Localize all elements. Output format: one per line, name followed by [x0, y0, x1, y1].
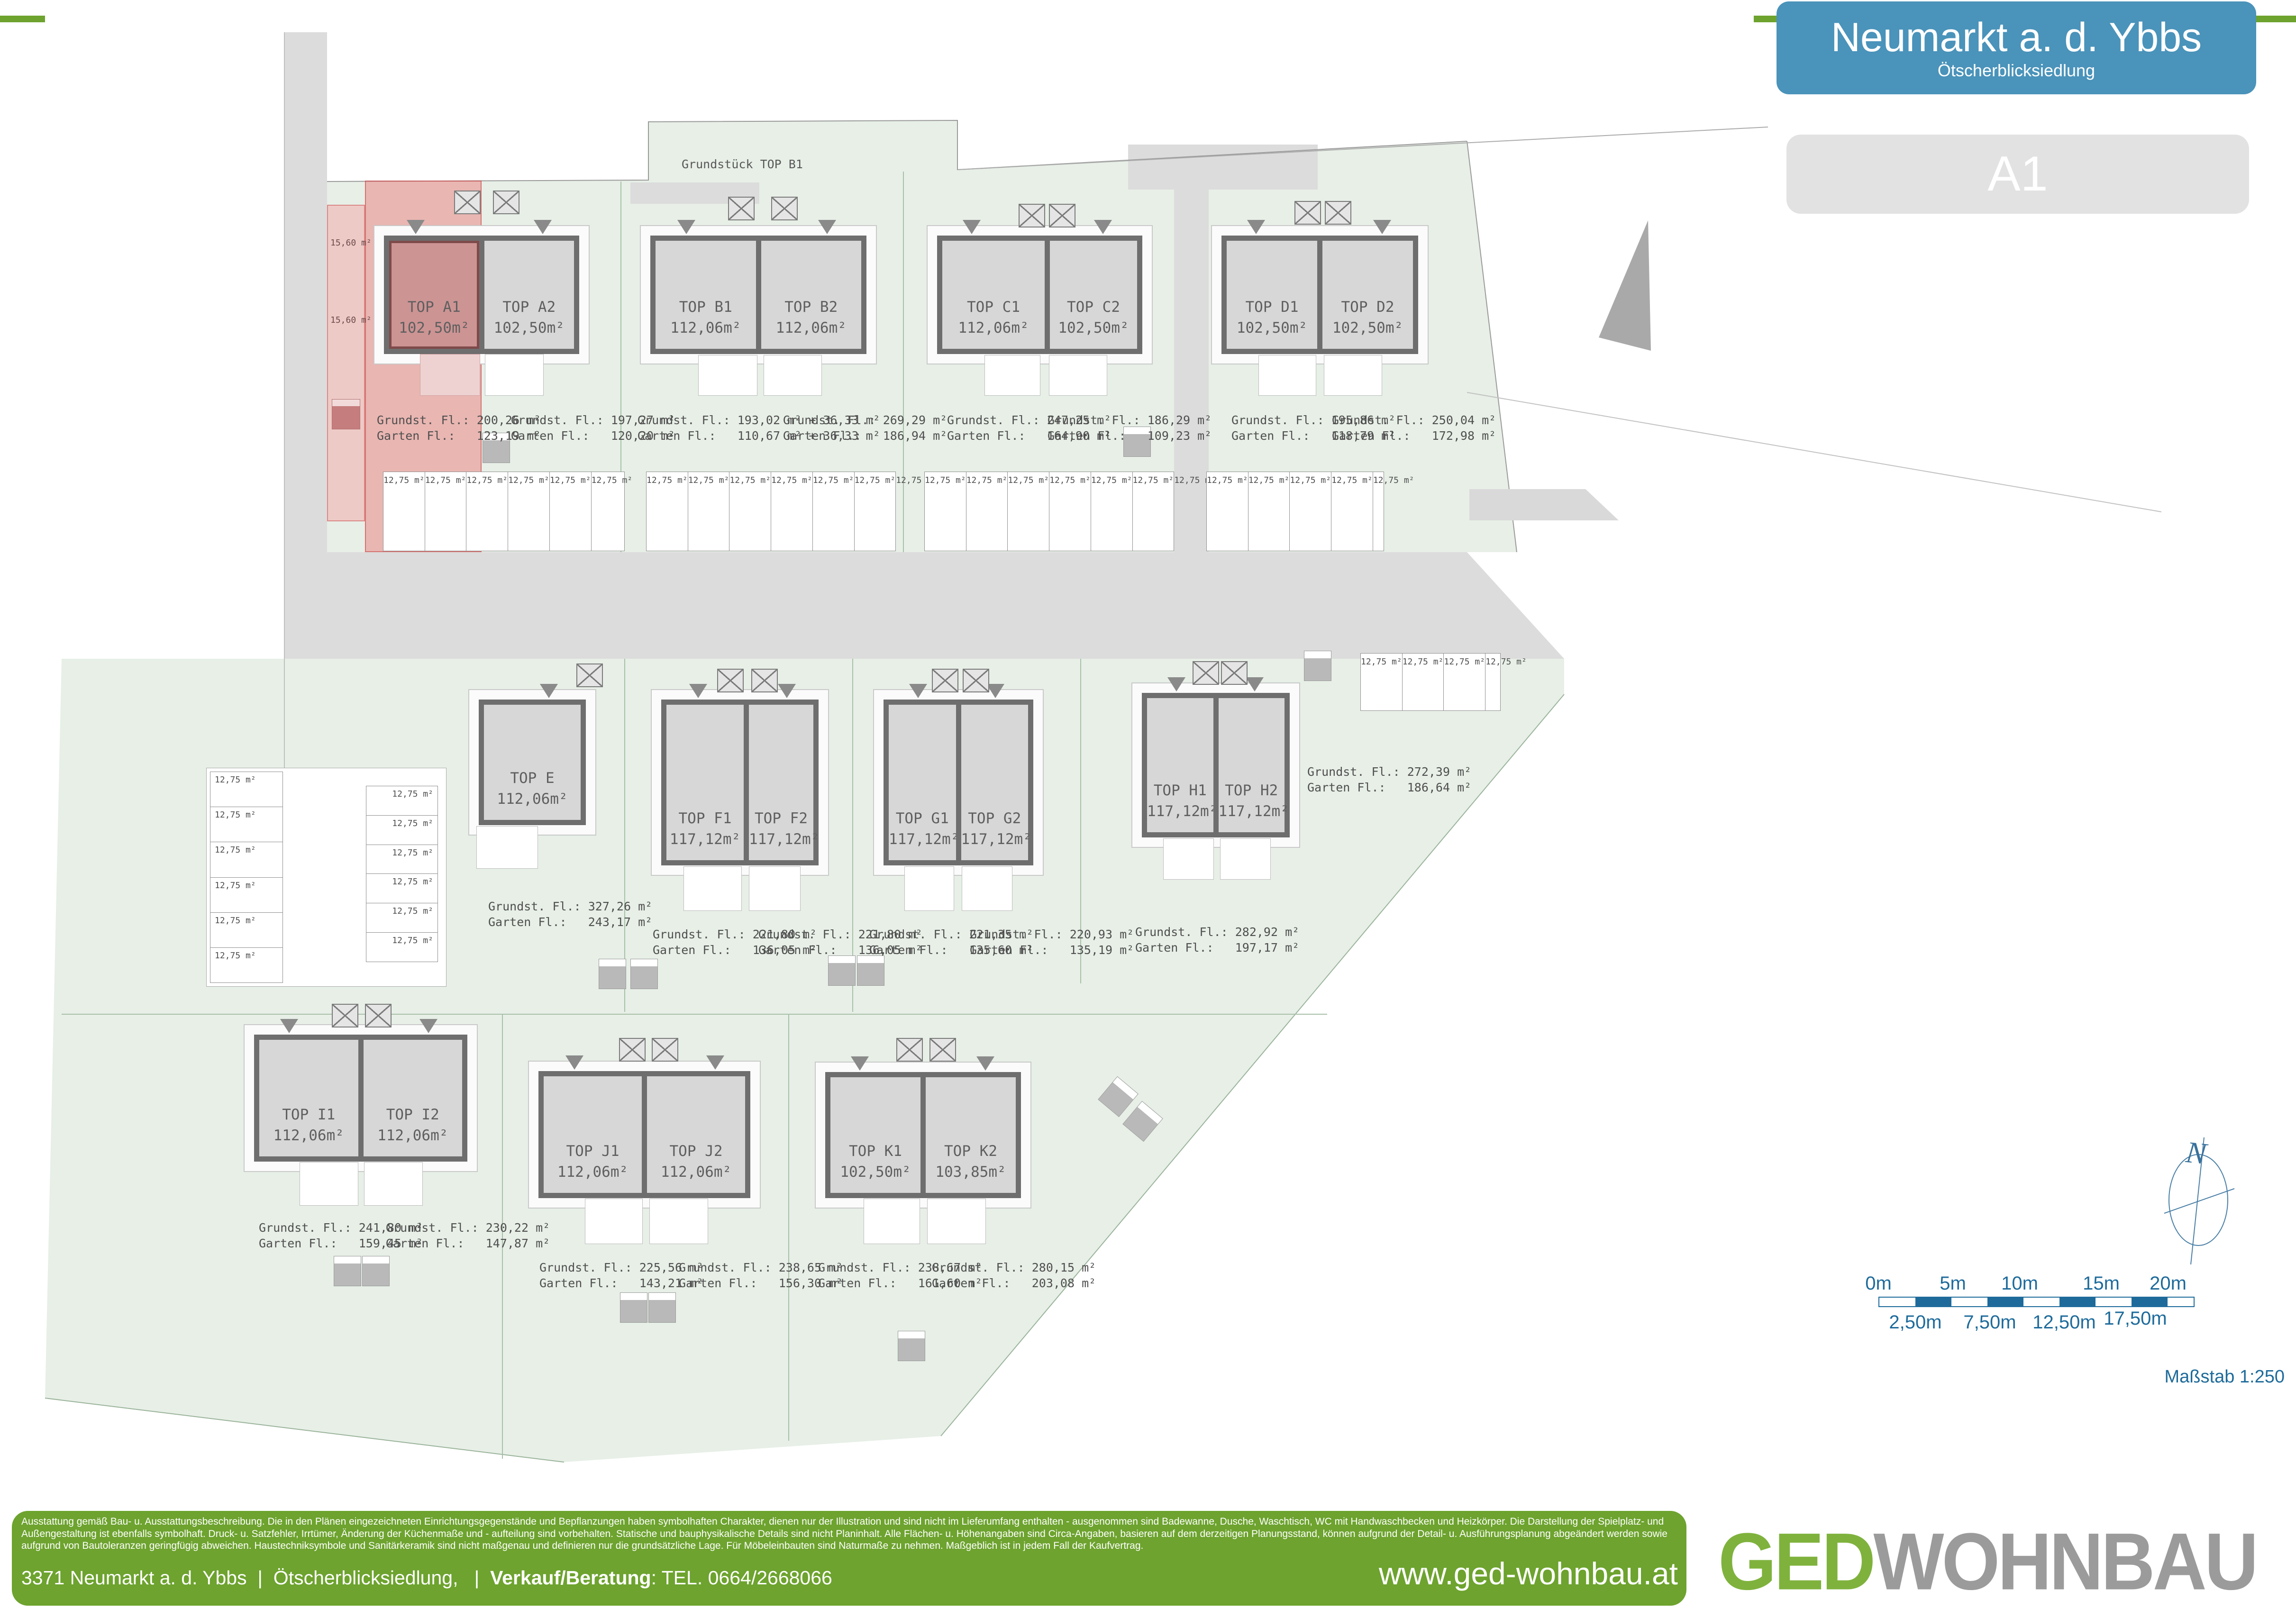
highlight-strip-a1	[327, 205, 365, 521]
unit-label: TOP G1117,12m²	[889, 808, 956, 850]
parcel-note: Grundstück TOP B1	[682, 157, 803, 171]
unit-top-g1: TOP G1117,12m²	[889, 705, 956, 860]
unit-label: TOP I2112,06m²	[364, 1104, 463, 1146]
garden-shed	[857, 955, 884, 986]
utility-box-icon	[963, 669, 989, 692]
parking-stall: 12,75 m²	[466, 472, 508, 551]
unit-label: TOP F2117,12m²	[749, 808, 813, 850]
unit-label: TOP C2102,50m²	[1050, 297, 1137, 338]
parking-stall: 12,75 m²	[1049, 472, 1091, 551]
unit-top-c1: TOP C1112,06m²	[942, 241, 1045, 349]
address-line: 3371 Neumarkt a. d. Ybbs | Ötscherblicks…	[21, 1567, 832, 1589]
parking-row-d: 12,75 m² 12,75 m² 12,75 m² 12,75 m² 12,7…	[1206, 472, 1384, 551]
unit-label: TOP D2102,50m²	[1322, 297, 1413, 338]
parking-stall: 12,75 m²	[647, 472, 688, 551]
website-url[interactable]: www.ged-wohnbau.at	[1228, 1555, 1678, 1591]
contact-label: Verkauf/Beratung	[490, 1567, 651, 1589]
garden-shed	[630, 959, 658, 989]
house-a: TOP A1102,50m² TOP A2102,50m²	[384, 236, 579, 354]
house-j: TOP J1112,06m² TOP J2112,06m²	[538, 1071, 750, 1198]
house-h: TOP H1117,12m² TOP H2117,12m²	[1142, 693, 1290, 837]
house-g: TOP G1117,12m² TOP G2117,12m²	[884, 700, 1033, 865]
unit-label: TOP B2112,06m²	[761, 297, 862, 338]
plot-data-h2: Grundst. Fl.: 272,39 m²Garten Fl.: 186,6…	[1307, 764, 1471, 795]
terrace	[485, 354, 544, 396]
parking-stall: 12,75 m²	[1444, 654, 1485, 710]
unit-top-h1: TOP H1117,12m²	[1147, 698, 1213, 832]
unit-label: TOP J1112,06m²	[544, 1141, 642, 1182]
strip-area-label: 15,60 m²	[330, 238, 372, 248]
unit-top-e: TOP E112,06m²	[484, 705, 581, 820]
parking-stall: 12,75 m²	[1207, 472, 1248, 551]
company-logo: GEDWOHNBAU	[1718, 1516, 2296, 1598]
terrace	[683, 866, 742, 911]
entrance-arrow-icon	[534, 220, 552, 234]
garden-shed	[1304, 651, 1331, 681]
parking-stall: 12,75 m²	[1248, 472, 1290, 551]
unit-top-c2: TOP C2102,50m²	[1045, 241, 1137, 349]
utility-box-icon	[932, 669, 958, 692]
parking-stall: 12,75 m²	[1133, 472, 1175, 551]
scale-caption: Maßstab 1:250	[2105, 1367, 2285, 1387]
unit-top-b2: TOP B2112,06m²	[756, 241, 862, 349]
terrace	[1324, 355, 1382, 396]
parking-row-a: 12,75 m² 12,75 m² 12,75 m² 12,75 m² 12,7…	[383, 472, 625, 551]
entrance-arrow-icon	[778, 684, 796, 698]
unit-label: TOP K1102,50m²	[830, 1141, 920, 1182]
plot-data-e: Grundst. Fl.: 327,26 m²Garten Fl.: 243,1…	[488, 899, 652, 930]
project-title-box: Neumarkt a. d. Ybbs Ötscherblicksiedlung	[1777, 1, 2256, 94]
unit-label: TOP A2102,50m²	[484, 297, 574, 338]
scale-tick: 5m	[1940, 1273, 1966, 1294]
house-c: TOP C1112,06m² TOP C2102,50m²	[937, 236, 1142, 354]
unit-label: TOP H1117,12m²	[1147, 780, 1213, 822]
garden-shed	[599, 959, 626, 989]
parking-stall: 12,75 m²	[366, 933, 437, 962]
unit-top-d1: TOP D1102,50m²	[1227, 241, 1317, 349]
parking-stall: 12,75 m²	[425, 472, 467, 551]
utility-box-icon	[332, 1004, 358, 1027]
unit-top-d2: TOP D2102,50m²	[1317, 241, 1413, 349]
unit-label: TOP I1112,06m²	[259, 1104, 358, 1146]
entrance-arrow-icon	[540, 684, 558, 698]
unit-label: TOP C1112,06m²	[942, 297, 1045, 338]
unit-top-k2: TOP K2103,85m²	[920, 1077, 1016, 1193]
utility-box-icon	[1221, 661, 1248, 685]
terrace	[1220, 838, 1271, 880]
utility-box-icon	[1325, 201, 1351, 225]
garden-shed-red	[332, 399, 360, 429]
entrance-arrow-icon	[419, 1019, 437, 1033]
utility-box-icon	[1193, 661, 1219, 685]
house-b: TOP B1112,06m² TOP B2112,06m²	[650, 236, 866, 354]
parking-stall: 12,75 m²	[366, 845, 437, 874]
scale-tick: 2,50m	[1889, 1312, 1941, 1333]
terrace	[364, 1162, 423, 1206]
logo-wohnbau: WOHNBAU	[1873, 1517, 2256, 1607]
parking-stall: 12,75 m²	[1091, 472, 1133, 551]
unit-badge: A1	[1786, 135, 2249, 214]
plot-data-i2: Grundst. Fl.: 230,22 m²Garten Fl.: 147,8…	[386, 1220, 550, 1251]
unit-label: TOP J2112,06m²	[647, 1141, 745, 1182]
terrace	[864, 1199, 920, 1244]
utility-box-icon	[1294, 201, 1321, 225]
scale-bar	[1878, 1297, 2195, 1307]
plot-data-k2: Grundst. Fl.: 280,15 m²Garten Fl.: 203,0…	[932, 1260, 1096, 1291]
unit-top-f2: TOP F2117,12m²	[744, 705, 813, 860]
parking-stall: 12,75 m²	[210, 948, 282, 982]
entrance-arrow-icon	[677, 220, 695, 234]
parking-stall: 12,75 m²	[813, 472, 855, 551]
entrance-arrow-icon	[909, 684, 927, 698]
garden-shed	[620, 1292, 647, 1323]
utility-box-icon	[771, 197, 798, 220]
garden-shed	[334, 1256, 361, 1286]
unit-top-i2: TOP I2112,06m²	[358, 1040, 463, 1156]
plot-data-b2: Grundst. Fl.: 269,29 m²Garten Fl.: 186,9…	[783, 412, 947, 444]
terrace	[962, 866, 1012, 911]
entrance-arrow-icon	[689, 684, 707, 698]
house-i: TOP I1112,06m² TOP I2112,06m²	[254, 1035, 467, 1162]
parking-stall: 12,75 m²	[210, 772, 282, 807]
scale-tick: 17,50m	[2104, 1308, 2167, 1329]
terrace	[1258, 355, 1316, 396]
utility-box-icon	[929, 1038, 956, 1062]
parking-stall: 12,75 m²	[366, 786, 437, 816]
entrance-arrow-icon	[407, 220, 425, 234]
terrace	[476, 826, 538, 869]
parking-stall: 12,75 m²	[592, 472, 633, 551]
garden-shed	[648, 1292, 676, 1323]
parking-stall: 12,75 m²	[210, 913, 282, 948]
parking-row-h: 12,75 m² 12,75 m² 12,75 m² 12,75 m²	[1360, 653, 1501, 711]
utility-box-icon	[1049, 204, 1075, 227]
garden-shed	[828, 955, 856, 986]
parking-row-b: 12,75 m² 12,75 m² 12,75 m² 12,75 m² 12,7…	[646, 472, 896, 551]
terrace	[984, 355, 1040, 396]
utility-box-icon	[493, 191, 519, 214]
terrace	[927, 1199, 986, 1244]
entrance-arrow-icon	[565, 1055, 583, 1070]
parking-stall: 12,75 m²	[1331, 472, 1373, 551]
parking-stall: 12,75 m²	[1290, 472, 1331, 551]
scale-tick: 7,50m	[1963, 1312, 2016, 1333]
entrance-arrow-icon	[851, 1056, 869, 1071]
utility-box-icon	[365, 1004, 392, 1027]
scale-tick: 15m	[2083, 1273, 2120, 1294]
parking-stall: 12,75 m²	[925, 472, 966, 551]
compass-north-label: N	[2184, 1135, 2208, 1172]
utility-box-icon	[896, 1038, 923, 1062]
road-main	[284, 552, 1564, 659]
plot-data-h1: Grundst. Fl.: 282,92 m²Garten Fl.: 197,1…	[1135, 924, 1299, 955]
entrance-arrow-icon	[280, 1019, 298, 1033]
utility-box-icon	[751, 669, 778, 692]
entrance-arrow-icon	[976, 1056, 994, 1071]
logo-ged: GED	[1718, 1517, 1873, 1607]
parking-stall: 12,75 m²	[366, 874, 437, 903]
scale-tick: 10m	[2001, 1273, 2038, 1294]
parking-stall: 12,75 m²	[966, 472, 1008, 551]
utility-box-icon	[728, 197, 755, 220]
scale-tick: 0m	[1865, 1273, 1892, 1294]
parking-stall: 12,75 m²	[855, 472, 896, 551]
entrance-arrow-icon	[1247, 220, 1265, 234]
plot-data-g2: Grundst. Fl.: 220,93 m²Garten Fl.: 135,1…	[970, 927, 1134, 958]
terrace	[764, 355, 822, 396]
page-title: Neumarkt a. d. Ybbs	[1831, 15, 2202, 60]
garden-shed	[362, 1256, 390, 1286]
unit-top-k1: TOP K1102,50m²	[830, 1077, 920, 1193]
entrance-arrow-icon	[963, 220, 981, 234]
parking-stall: 12,75 m²	[1403, 654, 1444, 710]
entrance-arrow-icon	[1373, 220, 1391, 234]
entrance-arrow-icon	[1094, 220, 1112, 234]
entrance-arrow-icon	[1246, 677, 1264, 691]
utility-box-icon	[454, 191, 481, 214]
utility-box-icon	[1019, 204, 1045, 227]
unit-top-a1: TOP A1102,50m²	[389, 241, 479, 349]
unit-top-a2: TOP A2102,50m²	[479, 241, 574, 349]
parking-stall: 12,75 m²	[508, 472, 550, 551]
parking-stall: 12,75 m²	[210, 878, 282, 913]
unit-top-b1: TOP B1112,06m²	[656, 241, 756, 349]
terrace	[649, 1199, 708, 1244]
parking-stall: 12,75 m²	[550, 472, 592, 551]
unit-top-g2: TOP G2117,12m²	[956, 705, 1029, 860]
garden-shed	[898, 1331, 925, 1361]
parking-stall: 12,75 m²	[771, 472, 813, 551]
unit-label: TOP K2103,85m²	[926, 1141, 1016, 1182]
utility-box-icon	[576, 664, 603, 687]
entrance-arrow-icon	[818, 220, 836, 234]
parking-column-east: 12,75 m² 12,75 m² 12,75 m² 12,75 m² 12,7…	[366, 786, 438, 962]
terrace	[698, 355, 757, 396]
parking-column-west: 12,75 m² 12,75 m² 12,75 m² 12,75 m² 12,7…	[210, 772, 283, 983]
terrace	[749, 866, 801, 911]
scale-tick: 12,50m	[2032, 1312, 2096, 1333]
utility-box-icon	[619, 1038, 646, 1062]
unit-top-i1: TOP I1112,06m²	[259, 1040, 358, 1156]
terrace	[1163, 838, 1214, 880]
unit-top-j2: TOP J2112,06m²	[642, 1076, 745, 1193]
unit-top-h2: TOP H2117,12m²	[1213, 698, 1285, 832]
parking-stall: 12,75 m²	[1485, 654, 1527, 710]
parking-stall: 12,75 m²	[729, 472, 771, 551]
parking-stall: 12,75 m²	[1373, 472, 1414, 551]
unit-label: TOP B1112,06m²	[656, 297, 756, 338]
parking-row-c: 12,75 m² 12,75 m² 12,75 m² 12,75 m² 12,7…	[924, 472, 1174, 551]
unit-label: TOP A1102,50m²	[389, 297, 479, 338]
terrace	[420, 354, 480, 396]
page-subtitle: Ötscherblicksiedlung	[1938, 60, 2095, 81]
site-plan-page: 15,60 m² 15,60 m² 12,75 m² 12,75 m² 12,7…	[0, 0, 2296, 1609]
parking-stall: 12,75 m²	[383, 472, 425, 551]
utility-box-icon	[652, 1038, 678, 1062]
parking-stall: 12,75 m²	[688, 472, 730, 551]
utility-box-icon	[717, 669, 744, 692]
unit-label: TOP G2117,12m²	[961, 808, 1029, 850]
entrance-arrow-icon	[706, 1055, 724, 1070]
parking-stall: 12,75 m²	[210, 807, 282, 842]
entrance-arrow-icon	[1167, 677, 1185, 691]
house-e: TOP E112,06m²	[479, 700, 586, 825]
unit-label: TOP D1102,50m²	[1227, 297, 1317, 338]
plot-data-d2: Grundst. Fl.: 250,04 m²Garten Fl.: 172,9…	[1332, 412, 1496, 444]
parking-stall: 12,75 m²	[1008, 472, 1049, 551]
unit-top-j1: TOP J1112,06m²	[544, 1076, 642, 1193]
parking-stall: 12,75 m²	[210, 842, 282, 877]
parking-stall: 12,75 m²	[366, 903, 437, 933]
header-accent-line	[0, 16, 45, 22]
disclaimer-text: Ausstattung gemäß Bau- u. Ausstattungsbe…	[21, 1516, 1678, 1552]
house-f: TOP F1117,12m² TOP F2117,12m²	[661, 700, 819, 865]
terrace	[300, 1162, 358, 1206]
parking-stall: 12,75 m²	[366, 816, 437, 845]
house-d: TOP D1102,50m² TOP D2102,50m²	[1221, 236, 1418, 354]
strip-area-label: 15,60 m²	[330, 315, 372, 325]
terrace	[1049, 355, 1107, 396]
unit-label: TOP H2117,12m²	[1219, 780, 1285, 822]
unit-label: TOP E112,06m²	[484, 768, 581, 809]
parking-stall: 12,75 m²	[1361, 654, 1403, 710]
plot-data-c2: Grundst. Fl.: 186,29 m²Garten Fl.: 109,2…	[1048, 412, 1212, 444]
unit-label: TOP F1117,12m²	[666, 808, 744, 850]
terrace	[585, 1199, 643, 1244]
house-k: TOP K1102,50m² TOP K2103,85m²	[825, 1072, 1021, 1198]
road-entry-apron	[1128, 145, 1318, 190]
scale-tick: 20m	[2150, 1273, 2187, 1294]
unit-top-f1: TOP F1117,12m²	[666, 705, 744, 860]
terrace	[904, 866, 954, 911]
